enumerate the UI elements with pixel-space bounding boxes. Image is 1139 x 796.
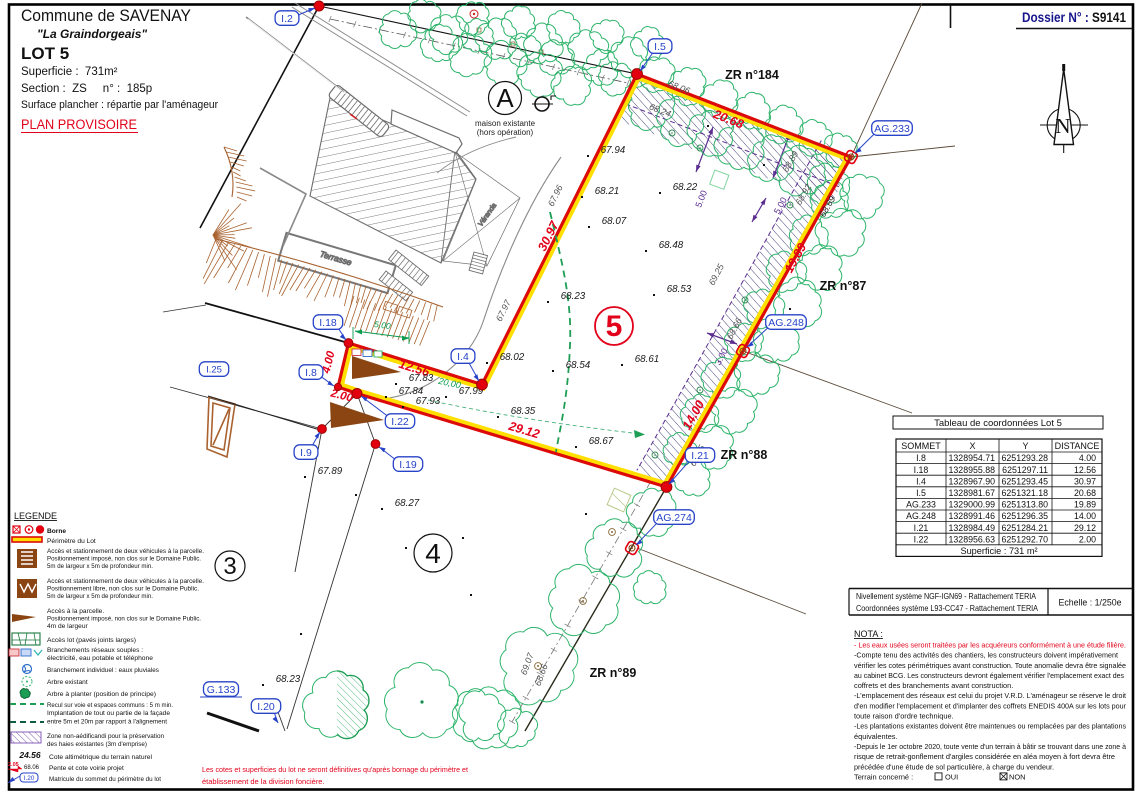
svg-text:68.61: 68.61 [635, 354, 660, 365]
svg-text:2.05: 2.05 [8, 762, 19, 768]
svg-text:Matricule du sommet du périmèt: Matricule du sommet du périmètre du lot [49, 776, 161, 783]
svg-text:6251292.70: 6251292.70 [1002, 534, 1049, 544]
svg-text:68.54: 68.54 [566, 360, 591, 371]
svg-text:30.97: 30.97 [1074, 476, 1096, 486]
svg-text:Accès lot (pavés joints larges: Accès lot (pavés joints larges) [47, 637, 136, 644]
svg-text:6251284.21: 6251284.21 [1002, 523, 1049, 533]
svg-text:au cabinet BCG. Les constructe: au cabinet BCG. Les constructeurs devron… [854, 671, 1124, 680]
svg-text:I.18: I.18 [914, 465, 929, 475]
svg-text:vérifier les cotes périmétriqu: vérifier les cotes périmétriques avant c… [854, 661, 1126, 670]
svg-text:I.20: I.20 [257, 701, 275, 713]
svg-text:6251313.80: 6251313.80 [1002, 500, 1049, 510]
svg-text:X: X [969, 441, 975, 451]
svg-text:Cote altimétrique du terrain n: Cote altimétrique du terrain naturel [49, 754, 153, 761]
svg-text:I.5: I.5 [916, 488, 926, 498]
svg-text:Commune de SAVENAY: Commune de SAVENAY [21, 7, 191, 25]
svg-text:I.20: I.20 [24, 775, 35, 782]
svg-text:68.27: 68.27 [395, 498, 420, 509]
svg-text:AG.233: AG.233 [874, 123, 910, 135]
svg-text:12.56: 12.56 [1074, 465, 1096, 475]
svg-text:AG.248: AG.248 [906, 511, 936, 521]
svg-text:67.89: 67.89 [318, 466, 343, 477]
svg-text:68.22: 68.22 [673, 182, 698, 193]
svg-text:PLAN PROVISOIRE: PLAN PROVISOIRE [21, 117, 137, 132]
svg-text:ZR n°87: ZR n°87 [820, 279, 867, 293]
svg-text:6251296.35: 6251296.35 [1002, 511, 1049, 521]
svg-text:1329000.99: 1329000.99 [949, 500, 996, 510]
svg-text:24.56: 24.56 [18, 750, 41, 760]
svg-text:AG.274: AG.274 [656, 512, 692, 524]
svg-text:29.12: 29.12 [1074, 523, 1096, 533]
svg-text:AG.233: AG.233 [906, 500, 936, 510]
svg-text:risque de retrait-gonflement d: risque de retrait-gonflement d'argiles c… [854, 752, 1115, 761]
svg-text:Coordonnées système L93-CC47: Coordonnées système L93-CC47 - Rattachem… [856, 604, 1039, 613]
svg-text:1328956.63: 1328956.63 [949, 534, 996, 544]
svg-text:Tableau de coordonnées Lot 5: Tableau de coordonnées Lot 5 [934, 418, 1062, 429]
svg-text:coffrets et des branchements a: coffrets et des branchements avant const… [854, 681, 1013, 690]
svg-text:68.23: 68.23 [561, 291, 586, 302]
svg-text:1328967.90: 1328967.90 [949, 476, 996, 486]
svg-text:6251293.45: 6251293.45 [1002, 476, 1049, 486]
svg-text:(hors opération): (hors opération) [477, 128, 534, 137]
svg-text:d'en modifier l'emplacement et: d'en modifier l'emplacement et d'implant… [854, 701, 1127, 710]
svg-text:NOTA :: NOTA : [854, 629, 883, 639]
svg-text:4m de largeur: 4m de largeur [47, 623, 88, 630]
svg-text:Superficie : 731 m²: Superficie : 731 m² [960, 546, 1037, 556]
svg-text:1328954.71: 1328954.71 [949, 453, 996, 463]
svg-text:Echelle : 1/250e: Echelle : 1/250e [1058, 598, 1121, 608]
svg-text:précédée d'une étude de sol pa: précédée d'une étude de sol particulière… [854, 762, 1054, 771]
svg-text:A: A [496, 83, 514, 113]
svg-text:I.22: I.22 [391, 416, 409, 428]
svg-text:Borne: Borne [47, 528, 66, 535]
svg-text:I.4: I.4 [916, 476, 926, 486]
svg-text:I.18: I.18 [319, 317, 337, 329]
svg-text:Superficie : 731m²: Superficie : 731m² [21, 66, 118, 78]
svg-text:I.19: I.19 [399, 459, 417, 471]
svg-text:4.00: 4.00 [1079, 453, 1096, 463]
svg-text:1328981.67: 1328981.67 [949, 488, 996, 498]
svg-text:maison existante: maison existante [475, 119, 536, 128]
svg-text:6251321.18: 6251321.18 [1002, 488, 1049, 498]
svg-text:68.06: 68.06 [24, 765, 40, 771]
svg-text:-Les plantations existantes do: -Les plantations existantes doivent être… [854, 722, 1126, 731]
svg-text:67.83: 67.83 [409, 373, 434, 384]
svg-text:Périmètre du Lot: Périmètre du Lot [47, 538, 96, 545]
svg-text:LOT 5: LOT 5 [21, 44, 69, 63]
svg-text:68.23: 68.23 [276, 674, 301, 685]
svg-text:- Les eaux usées seront traité: - Les eaux usées seront traitées par les… [854, 641, 1126, 650]
svg-text:Zone non-aédificandi pour la p: Zone non-aédificandi pour la préservatio… [47, 733, 164, 740]
svg-text:67.93: 67.93 [416, 396, 441, 407]
svg-text:NON: NON [1009, 772, 1025, 781]
svg-text:I.22: I.22 [914, 534, 929, 544]
svg-text:19.89: 19.89 [1074, 500, 1096, 510]
svg-text:équivalentes.: équivalentes. [854, 732, 898, 741]
svg-text:-Depuis le 1er octobre 2020, t: -Depuis le 1er octobre 2020, toute vente… [854, 742, 1127, 751]
svg-text:1328991.46: 1328991.46 [949, 511, 996, 521]
svg-text:G.133: G.133 [207, 684, 236, 696]
svg-text:1328955.88: 1328955.88 [949, 465, 996, 475]
svg-text:I.8: I.8 [305, 367, 317, 379]
svg-text:Accès et stationnement de deux: Accès et stationnement de deux véhicules… [47, 578, 204, 585]
svg-text:électricité, eau potable et té: électricité, eau potable et téléphone [47, 655, 153, 662]
svg-text:Branchement individuel : eaux: Branchement individuel : eaux pluviales [47, 667, 160, 674]
svg-text:Section : ZS n° : 185p: Section : ZS n° : 185p [21, 83, 152, 95]
svg-text:Recul sur voie et espaces comm: Recul sur voie et espaces communs : 5 m … [47, 702, 173, 709]
svg-text:2.00: 2.00 [1079, 534, 1096, 544]
svg-text:Les cotes et superficies du lo: Les cotes et superficies du lot ne seron… [202, 765, 469, 774]
svg-text:68.02: 68.02 [500, 352, 525, 363]
svg-text:Positionnement imposé, non clo: Positionnement imposé, non clos sur le D… [47, 556, 201, 563]
svg-text:Dossier N° : S9141: Dossier N° : S9141 [1022, 10, 1126, 25]
svg-text:ZR n°88: ZR n°88 [721, 448, 768, 462]
svg-text:Pente et cote voirie projet: Pente et cote voirie projet [49, 765, 124, 772]
svg-text:68.67: 68.67 [589, 436, 614, 447]
svg-text:20.68: 20.68 [1074, 488, 1096, 498]
svg-text:3: 3 [223, 553, 236, 580]
svg-text:I.25: I.25 [206, 364, 222, 375]
svg-text:Arbre existant: Arbre existant [47, 679, 88, 686]
svg-text:68.07: 68.07 [602, 216, 627, 227]
svg-text:des haies existantes (3m d'emp: des haies existantes (3m d'emprise) [47, 741, 147, 748]
svg-text:-L'emplacement des réseaux est: -L'emplacement des réseaux est celui du … [854, 691, 1126, 700]
svg-text:OUI: OUI [945, 772, 958, 781]
svg-text:I.4: I.4 [457, 351, 469, 363]
svg-text:Accès à la parcelle.: Accès à la parcelle. [47, 608, 104, 615]
svg-text:Implantation de tout ou partie: Implantation de tout ou partie de la faç… [47, 710, 170, 717]
svg-text:toute raison d'ordre technique: toute raison d'ordre technique. [854, 712, 954, 721]
svg-text:entre 5m et 20m par rapport à: entre 5m et 20m par rapport à l'aligneme… [47, 719, 167, 726]
svg-text:SOMMET: SOMMET [901, 441, 941, 451]
svg-text:I.21: I.21 [691, 450, 709, 462]
svg-text:Arbre à planter (position de p: Arbre à planter (position de principe) [47, 691, 156, 698]
svg-text:I.21: I.21 [914, 523, 929, 533]
svg-text:68.21: 68.21 [595, 186, 620, 197]
svg-text:établissement de la division f: établissement de la division foncière. [202, 777, 325, 786]
svg-text:DISTANCE: DISTANCE [1055, 441, 1100, 451]
svg-text:ZR n°184: ZR n°184 [725, 68, 779, 82]
svg-text:I.9: I.9 [300, 447, 312, 459]
svg-text:Positionnement libre, non clos: Positionnement libre, non clos sur le Do… [47, 586, 199, 593]
svg-text:6251297.11: 6251297.11 [1002, 465, 1048, 475]
svg-text:Y: Y [1022, 441, 1028, 451]
svg-text:"La Graindorgeais": "La Graindorgeais" [37, 27, 147, 41]
svg-text:4: 4 [425, 538, 441, 569]
svg-text:14.00: 14.00 [1074, 511, 1096, 521]
svg-text:Terrain concerné :: Terrain concerné : [854, 772, 913, 781]
svg-text:5m de largeur x 5m de profonde: 5m de largeur x 5m de profondeur min. [47, 563, 153, 570]
svg-text:68.48: 68.48 [659, 240, 684, 251]
svg-text:Accès et stationnement de deux: Accès et stationnement de deux véhicules… [47, 548, 204, 555]
svg-text:N: N [1055, 114, 1070, 138]
svg-text:AG.248: AG.248 [768, 317, 804, 329]
svg-text:I.8: I.8 [916, 453, 926, 463]
svg-text:1328984.49: 1328984.49 [949, 523, 996, 533]
svg-text:68.35: 68.35 [511, 406, 536, 417]
svg-text:ZR n°89: ZR n°89 [590, 666, 637, 680]
svg-text:LEGENDE: LEGENDE [14, 511, 57, 521]
svg-text:5m de largeur x 5m de profonde: 5m de largeur x 5m de profondeur min. [47, 593, 153, 600]
svg-text:Positionnement imposé, non clo: Positionnement imposé, non clos sur le D… [47, 616, 201, 623]
svg-text:I.2: I.2 [281, 13, 293, 25]
svg-text:Surface plancher : répartie pa: Surface plancher : répartie par l'aménag… [21, 99, 218, 111]
svg-text:6251293.28: 6251293.28 [1002, 453, 1049, 463]
svg-text:-Compte tenu des activités des: -Compte tenu des activités des chantiers… [854, 651, 1118, 660]
svg-text:I.5: I.5 [654, 41, 666, 53]
svg-text:Nivellement système NGF-IGN69: Nivellement système NGF-IGN69 - Rattache… [856, 592, 1037, 601]
svg-text:67.94: 67.94 [601, 145, 626, 156]
svg-text:Branchements réseaux souples :: Branchements réseaux souples : [47, 647, 143, 654]
svg-text:68.53: 68.53 [667, 284, 692, 295]
svg-text:5: 5 [606, 310, 623, 343]
